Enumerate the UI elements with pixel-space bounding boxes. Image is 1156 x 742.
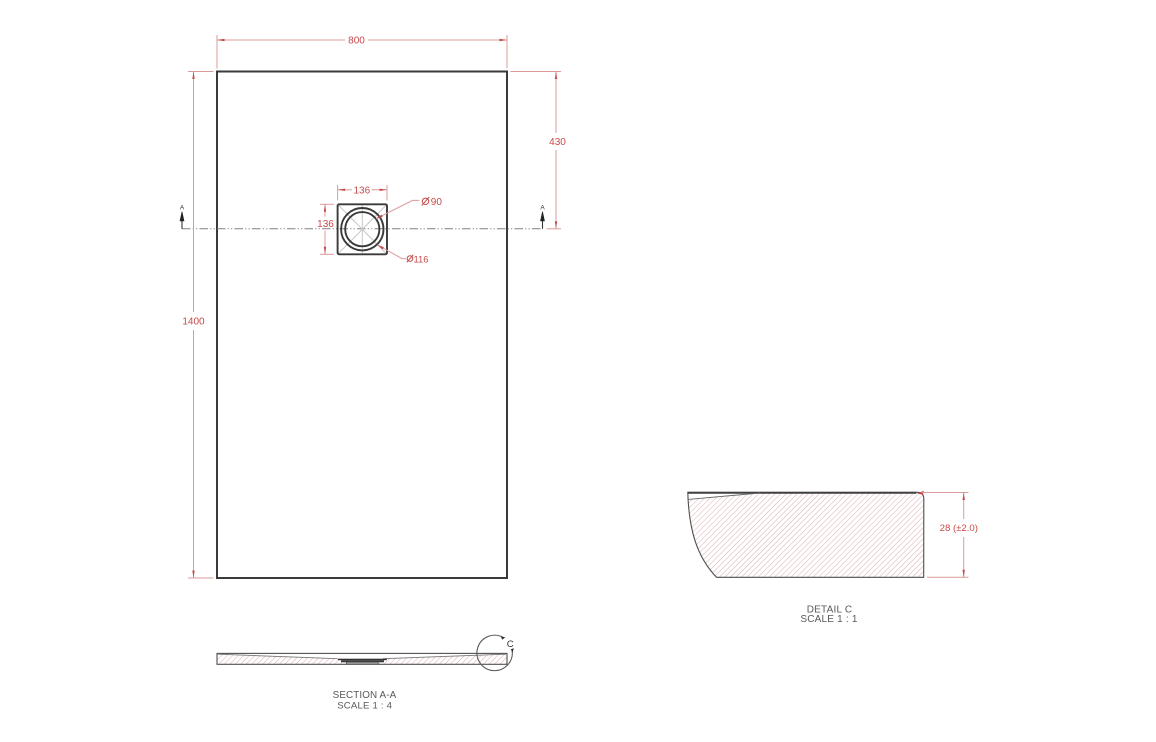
svg-text:1400: 1400 [182,317,205,328]
svg-text:C: C [507,639,514,650]
svg-text:116: 116 [414,253,429,264]
svg-text:136: 136 [317,219,334,230]
svg-text:430: 430 [549,137,566,148]
svg-text:800: 800 [348,36,365,47]
svg-text:90: 90 [431,197,443,208]
svg-text:A: A [540,205,545,212]
svg-text:136: 136 [353,185,370,196]
svg-text:A: A [180,205,185,212]
svg-text:SCALE 1 : 4: SCALE 1 : 4 [337,700,392,711]
svg-text:28 (±2.0): 28 (±2.0) [940,523,978,534]
svg-text:SCALE 1 : 1: SCALE 1 : 1 [800,614,857,625]
